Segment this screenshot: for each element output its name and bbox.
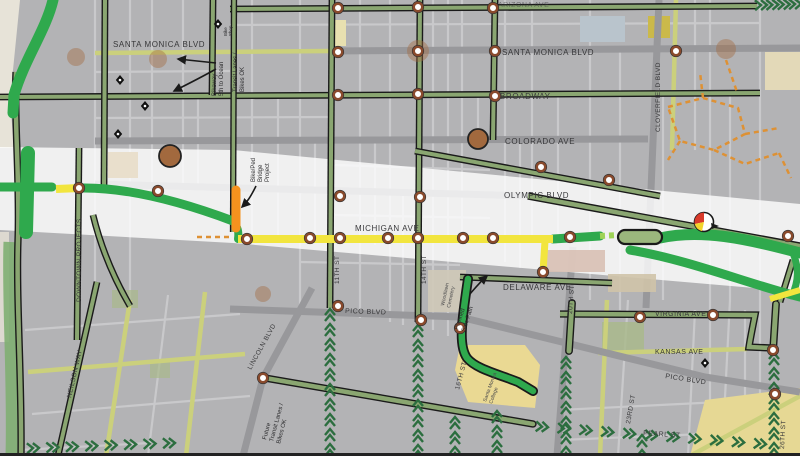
planned-path-capsule bbox=[618, 230, 662, 244]
crossing-marker bbox=[336, 192, 344, 200]
parcel-block bbox=[765, 52, 800, 90]
crossing-marker bbox=[336, 234, 344, 242]
crossing-marker bbox=[537, 163, 545, 171]
bike-route bbox=[493, 0, 495, 140]
crossing-marker bbox=[784, 232, 792, 240]
crossing-marker bbox=[334, 48, 342, 56]
future-station-marker bbox=[67, 48, 85, 66]
crossing-marker bbox=[334, 91, 342, 99]
annotation: Bridge bbox=[258, 164, 264, 182]
expo-station-marker bbox=[468, 129, 488, 149]
annotation: 5th to Ocean bbox=[219, 62, 225, 96]
greenway-route bbox=[553, 236, 600, 239]
future-station-marker bbox=[716, 39, 736, 59]
bike-route bbox=[104, 0, 105, 188]
future-station-marker bbox=[149, 50, 167, 68]
annotation: Bikes OK bbox=[240, 67, 246, 92]
street-label: MICHIGAN AVE bbox=[355, 224, 419, 233]
crossing-marker bbox=[769, 346, 777, 354]
street-label: PICO BLVD bbox=[345, 308, 387, 316]
crossing-marker bbox=[243, 235, 251, 243]
street-label: 11TH ST bbox=[334, 256, 341, 284]
crossing-marker bbox=[75, 184, 83, 192]
street-label: CLOVERFIELD BLVD bbox=[655, 62, 662, 132]
annotation: Bike/Ped bbox=[251, 158, 257, 182]
crossing-marker bbox=[605, 176, 613, 184]
crossing-marker bbox=[672, 47, 680, 55]
crossing-marker bbox=[414, 234, 422, 242]
crossing-marker bbox=[459, 234, 467, 242]
expo-station-marker bbox=[159, 145, 181, 167]
street-label: VIRGINIA AVE bbox=[655, 311, 706, 318]
annotation: Transit Lanes / bbox=[233, 52, 239, 92]
street-label: SANTA MONICA BLVD bbox=[113, 40, 205, 49]
street-label: COLORADO AVE bbox=[505, 137, 575, 146]
street-label: BROADWAY bbox=[500, 92, 551, 101]
bike-shop-marker bbox=[119, 79, 122, 82]
bike-route bbox=[330, 0, 332, 308]
greenbelt bbox=[10, 242, 13, 456]
annotation: Shop bbox=[228, 25, 233, 36]
crossing-marker bbox=[414, 3, 422, 11]
crossing-marker bbox=[709, 311, 717, 319]
bike-plan-map: ARIZONA AVE SANTA MONICA BLVD SANTA MONI… bbox=[0, 0, 800, 456]
crossing-marker bbox=[416, 193, 424, 201]
park-parcel bbox=[602, 322, 644, 352]
crossing-marker bbox=[334, 4, 342, 12]
bike-shop-marker bbox=[217, 23, 220, 26]
crossing-marker bbox=[771, 390, 779, 398]
crossing-marker bbox=[491, 47, 499, 55]
crossing-marker bbox=[414, 90, 422, 98]
bike-shop-marker bbox=[704, 362, 707, 365]
parcel-block bbox=[108, 152, 138, 178]
bike-shop-marker bbox=[117, 133, 120, 136]
street-label: OLYMPIC BLVD bbox=[504, 191, 569, 200]
crossing-marker bbox=[384, 234, 392, 242]
street-label: ARIZONA AVE bbox=[498, 2, 549, 9]
crossing-marker bbox=[259, 374, 267, 382]
street-label: 14TH ST bbox=[421, 255, 428, 284]
crossing-marker bbox=[491, 92, 499, 100]
parcel-block bbox=[608, 274, 656, 292]
parcel-block bbox=[545, 250, 605, 272]
bike-shop-marker bbox=[144, 105, 147, 108]
crossing-marker bbox=[489, 4, 497, 12]
minor-street bbox=[95, 117, 330, 118]
crossing-marker bbox=[489, 234, 497, 242]
future-station-marker bbox=[255, 286, 271, 302]
crossing-marker bbox=[154, 187, 162, 195]
annotation: Project bbox=[265, 163, 271, 182]
crossing-marker bbox=[417, 316, 425, 324]
annotation: Bikeway bbox=[212, 74, 218, 96]
crossing-marker bbox=[636, 313, 644, 321]
greenway-route bbox=[26, 153, 28, 232]
crossing-marker bbox=[539, 268, 547, 276]
parcel-block bbox=[580, 16, 625, 42]
crossing-marker bbox=[306, 234, 314, 242]
street-label: SANTA MONICA BLVD bbox=[502, 48, 594, 57]
street-label: DOWNTOWN PROJECTS bbox=[76, 218, 83, 302]
park-parcel bbox=[150, 362, 170, 378]
crossing-marker bbox=[334, 302, 342, 310]
crossing-marker bbox=[414, 47, 422, 55]
street-label: DELAWARE AVE bbox=[503, 283, 572, 292]
street-label: KANSAS AVE bbox=[655, 349, 703, 356]
crossing-marker bbox=[566, 233, 574, 241]
